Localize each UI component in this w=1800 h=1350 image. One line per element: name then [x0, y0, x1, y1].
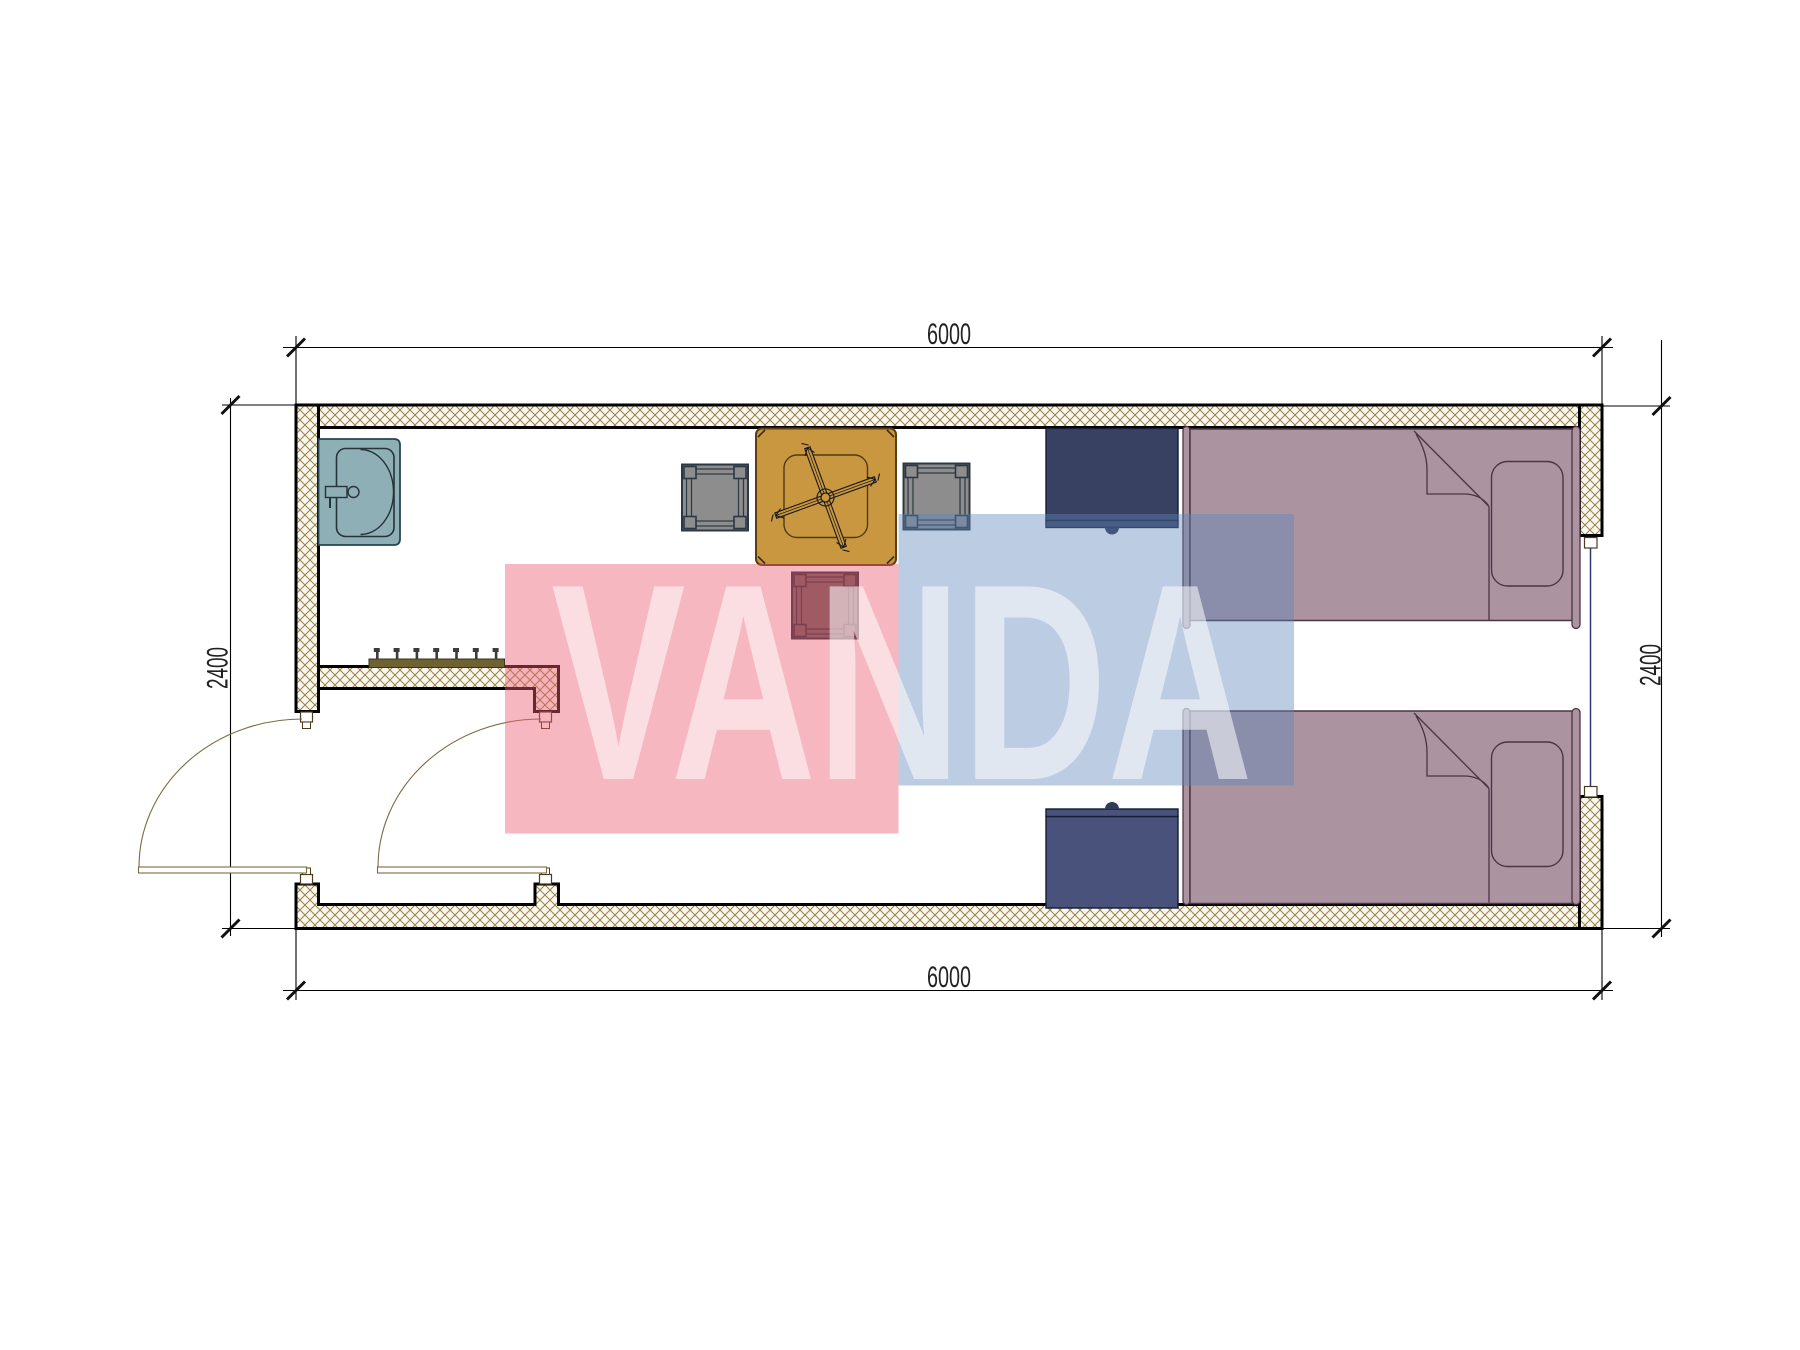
svg-text:VANDA: VANDA [551, 525, 1253, 838]
svg-text:2400: 2400 [202, 647, 235, 689]
svg-text:2400: 2400 [1635, 644, 1668, 686]
svg-text:6000: 6000 [927, 961, 971, 994]
svg-text:6000: 6000 [927, 318, 971, 351]
